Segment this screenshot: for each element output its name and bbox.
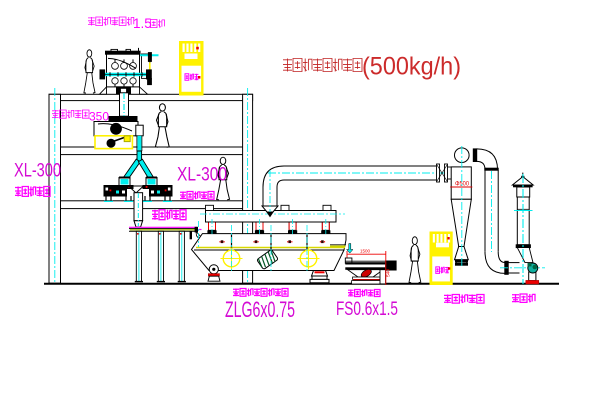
svg-text:350: 350 xyxy=(89,110,109,124)
svg-text:XL-300: XL-300 xyxy=(14,161,61,182)
svg-text:1.5: 1.5 xyxy=(133,16,152,31)
svg-text:Φ500: Φ500 xyxy=(455,182,470,188)
svg-text:XL-300: XL-300 xyxy=(177,165,227,186)
svg-text:1500: 1500 xyxy=(360,248,371,253)
svg-text:FS0.6x1.5: FS0.6x1.5 xyxy=(336,299,398,320)
svg-text:540: 540 xyxy=(386,269,392,277)
svg-text:(500kg/h): (500kg/h) xyxy=(362,53,461,81)
svg-text:ZLG6x0.75: ZLG6x0.75 xyxy=(225,297,295,322)
